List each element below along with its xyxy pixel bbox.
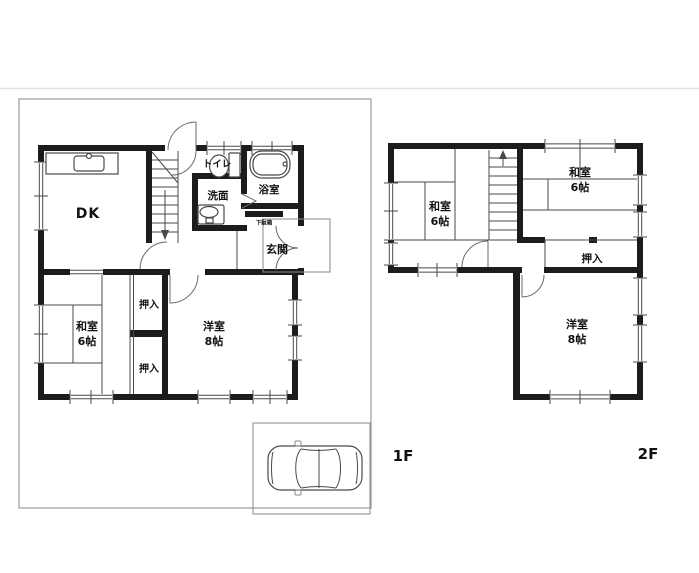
- room-label-closet-lower-1f: 押入: [139, 362, 159, 375]
- parking-area: [253, 423, 370, 514]
- floor-plan-drawing: DK トイレ 浴室 洗面 下駄箱 玄関 押入 押入 和室 6帖 洋室 8帖 1F: [0, 0, 699, 573]
- room-label-yoshitsu-1f: 洋室: [203, 319, 225, 333]
- stairs-1f: [152, 151, 178, 243]
- room-label-washitsu-right-2f: 和室: [569, 165, 591, 179]
- room-size-washitsu-1f: 6帖: [78, 334, 97, 348]
- washbasin-icon: [198, 205, 224, 224]
- room-label-closet-2f: 押入: [582, 252, 603, 265]
- room-size-washitsu-left-2f: 6帖: [431, 214, 450, 228]
- car-icon: [268, 441, 362, 495]
- room-label-washitsu-1f: 和室: [76, 319, 98, 333]
- room-label-toilet: トイレ: [203, 159, 232, 170]
- room-label-yoshitsu-2f: 洋室: [566, 317, 588, 331]
- room-label-washroom: 洗面: [208, 189, 229, 202]
- stairs-up-arrow-icon: [499, 150, 507, 166]
- shoe-cabinet: [245, 211, 283, 217]
- floor-label-1f: 1F: [393, 447, 414, 465]
- label-shoe-cabinet: 下駄箱: [256, 219, 273, 227]
- room-size-yoshitsu-1f: 8帖: [205, 334, 224, 348]
- kitchen-sink-icon: [46, 153, 118, 174]
- floor-label-2f: 2F: [638, 445, 659, 463]
- room-size-yoshitsu-2f: 8帖: [568, 332, 587, 346]
- room-size-washitsu-right-2f: 6帖: [571, 180, 590, 194]
- bathtub-icon: [250, 151, 290, 178]
- room-label-entrance: 玄関: [266, 242, 288, 256]
- floor-plan-page: DK トイレ 浴室 洗面 下駄箱 玄関 押入 押入 和室 6帖 洋室 8帖 1F: [0, 0, 699, 573]
- room-label-dk: DK: [76, 206, 101, 222]
- stairs-2f: [489, 150, 517, 240]
- room-label-bath: 浴室: [259, 183, 280, 196]
- room-label-closet-upper-1f: 押入: [139, 298, 159, 311]
- room-label-washitsu-left-2f: 和室: [429, 199, 451, 213]
- stairs-down-arrow-icon: [161, 190, 169, 240]
